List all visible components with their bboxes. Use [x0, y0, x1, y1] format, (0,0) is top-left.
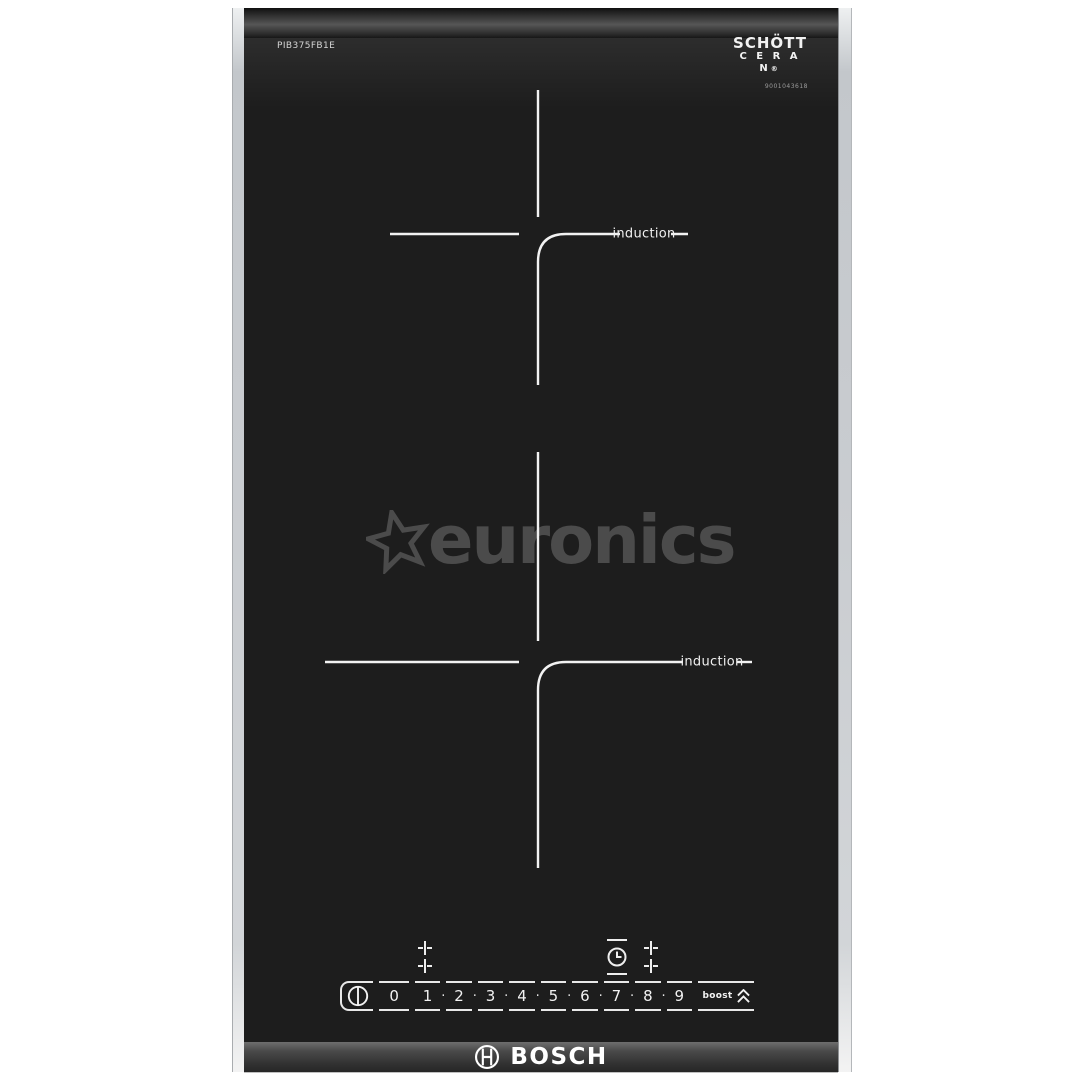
- power-button: [340, 981, 373, 1011]
- zone-select-icon: [417, 940, 433, 974]
- level-2: 2: [446, 981, 472, 1011]
- level-9: 9: [667, 981, 693, 1011]
- level-0: 0: [379, 981, 409, 1011]
- level-3: 3: [478, 981, 504, 1011]
- front-zone-induction-label: induction: [680, 655, 743, 670]
- boost-button: boost: [698, 981, 754, 1011]
- level-8: 8: [635, 981, 661, 1011]
- product-photo: PIB375FB1E SCHÖTT C E R A N® 9001043618 …: [0, 0, 1080, 1080]
- level-1: 1: [415, 981, 441, 1011]
- bosch-wordmark: BOSCH: [510, 1044, 607, 1070]
- level-6: 6: [572, 981, 598, 1011]
- hob-front-trim: BOSCH: [244, 1042, 838, 1073]
- boost-label: boost: [703, 991, 733, 1001]
- bosch-symbol-icon: [474, 1044, 500, 1070]
- zone-markings: [0, 0, 1080, 1080]
- power-level-slider: 0 1 · 2 · 3 · 4 · 5 · 6 · 7 · 8 · 9 boos…: [340, 981, 754, 1011]
- level-7: 7: [604, 981, 630, 1011]
- timer-icon: [604, 938, 630, 976]
- level-5: 5: [541, 981, 567, 1011]
- level-4: 4: [509, 981, 535, 1011]
- boost-chevrons-icon: [737, 989, 750, 1004]
- zone-select-icon: [643, 940, 659, 974]
- rear-zone-induction-label: induction: [612, 227, 675, 242]
- power-icon: [346, 984, 370, 1008]
